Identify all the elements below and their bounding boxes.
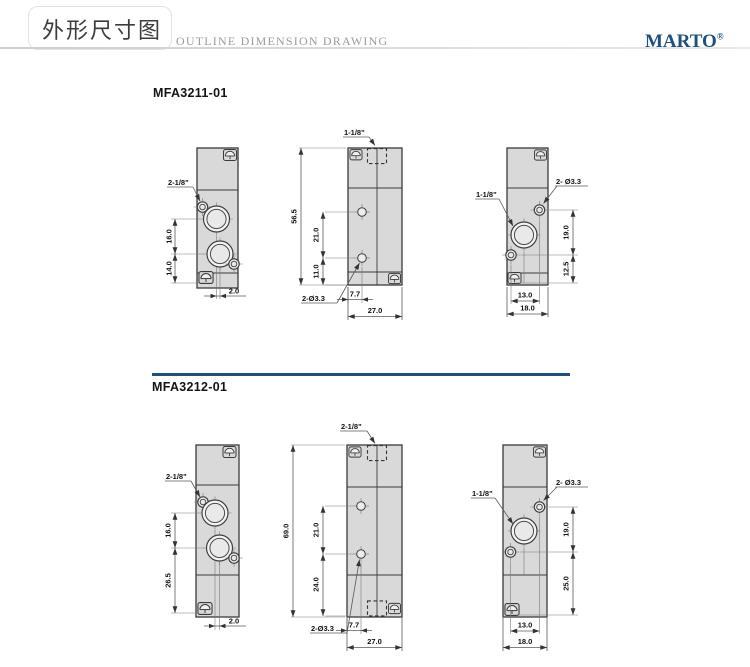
dimension-label: 13.0 — [518, 291, 533, 300]
dim-26-5: 26.5 — [164, 548, 176, 613]
screw-icon — [388, 603, 400, 613]
port-callout: 2-1/8" — [165, 472, 200, 497]
port-callout: 2-1/8" — [167, 178, 200, 201]
screw-icon — [199, 272, 213, 284]
brand-logo: MARTO® — [645, 31, 724, 53]
dimension-label: 2.0 — [229, 617, 239, 626]
dimension-label: 24.0 — [312, 577, 321, 592]
model-title-mfa3212: MFA3212-01 — [152, 380, 227, 394]
dimension-label: 26.5 — [164, 573, 173, 588]
holes-label: 2-Ø3.3 — [302, 294, 325, 303]
port-label: 2-1/8" — [341, 422, 362, 431]
screw-icon — [388, 273, 400, 283]
dimension-label: 56.5 — [290, 209, 299, 224]
mfa3212-front-view: 2-1/8" 69.0 21.0 24.0 — [282, 422, 403, 651]
dimension-label: 21.0 — [312, 228, 321, 243]
dim-25: 25.0 — [562, 552, 574, 615]
screw-icon — [508, 273, 521, 284]
dimension-label: 2.0 — [229, 287, 239, 296]
catalog-page: 外形尺寸图 OUTLINE DIMENSION DRAWING MARTO® M… — [0, 0, 750, 667]
drawing-mfa3211: 2-1/8" 16.0 14.0 2.0 — [140, 110, 610, 360]
mfa3212-left-view: 2-1/8" 16.0 26.5 2.0 — [164, 445, 247, 630]
dimension-label: 12.5 — [562, 262, 571, 277]
dim-19: 19.0 — [562, 210, 574, 255]
dim-24: 24.0 — [312, 554, 347, 616]
dimension-label: 69.0 — [282, 524, 291, 539]
holes-label: 2- Ø3.3 — [556, 478, 581, 487]
dimension-label: 27.0 — [368, 306, 383, 315]
dimension-label: 16.0 — [165, 229, 174, 244]
screw-icon — [224, 150, 237, 161]
dimension-label: 11.0 — [312, 264, 321, 278]
section-divider — [152, 373, 570, 376]
screw-icon — [349, 447, 361, 457]
dimension-label: 7.7 — [349, 621, 359, 630]
dimension-label: 18.0 — [520, 304, 535, 313]
dim-16: 16.0 — [165, 219, 176, 254]
port-callout: 2-1/8" — [340, 422, 375, 444]
screw-icon — [534, 150, 546, 160]
port-label: 1-1/8" — [476, 190, 497, 199]
drawing-mfa3212: 2-1/8" 16.0 26.5 2.0 — [140, 410, 610, 667]
dim-12-5: 12.5 — [562, 255, 574, 283]
dim-16: 16.0 — [164, 513, 176, 548]
holes-callout: 2- Ø3.3 — [544, 177, 589, 204]
dimension-label: 7.7 — [350, 290, 360, 299]
dim-13: 13.0 — [511, 291, 540, 302]
dimension-label: 16.0 — [164, 523, 173, 538]
page-title-chinese: 外形尺寸图 — [42, 13, 162, 45]
screw-icon — [198, 603, 212, 615]
dimension-label: 27.0 — [367, 637, 382, 646]
dim-19: 19.0 — [562, 507, 574, 552]
screw-icon — [223, 447, 236, 458]
dimension-label: 18.0 — [518, 637, 533, 646]
mfa3211-front-view: 1-1/8" 56.5 21.0 11.0 — [290, 128, 403, 320]
mfa3211-left-view: 2-1/8" 16.0 14.0 2.0 — [165, 148, 247, 299]
screw-icon — [350, 150, 362, 160]
brand-name: MARTO — [645, 31, 717, 52]
port-label: 2-1/8" — [168, 178, 189, 187]
mfa3212-side-view: 2- Ø3.3 1-1/8" 19.0 25.0 13.0 — [471, 445, 588, 651]
dim-13: 13.0 — [511, 621, 540, 632]
screw-icon — [505, 604, 519, 616]
holes-label: 2- Ø3.3 — [556, 177, 581, 186]
dim-14: 14.0 — [165, 254, 176, 283]
screw-icon — [533, 447, 545, 457]
mfa3211-side-view: 2- Ø3.3 1-1/8" 19.0 12.5 13.0 — [475, 148, 588, 317]
dimension-label: 21.0 — [312, 523, 321, 538]
dimension-label: 19.0 — [562, 522, 571, 537]
port-callout: 1-1/8" — [343, 128, 375, 146]
dim-11: 11.0 — [312, 258, 348, 285]
holes-callout: 2- Ø3.3 — [544, 478, 589, 501]
model-title-mfa3211: MFA3211-01 — [153, 86, 228, 100]
dim-offset-2: 2.0 — [204, 617, 246, 629]
dimension-label: 25.0 — [562, 576, 571, 591]
registered-mark: ® — [717, 32, 724, 42]
dimension-label: 14.0 — [165, 261, 174, 276]
page-title-english: OUTLINE DIMENSION DRAWING — [176, 34, 388, 49]
holes-label: 2-Ø3.3 — [311, 624, 334, 633]
dimension-label: 19.0 — [562, 225, 571, 240]
port-label: 2-1/8" — [166, 472, 187, 481]
dimension-label: 13.0 — [518, 621, 533, 630]
port-label: 1-1/8" — [344, 128, 365, 137]
port-label: 1-1/8" — [472, 489, 493, 498]
